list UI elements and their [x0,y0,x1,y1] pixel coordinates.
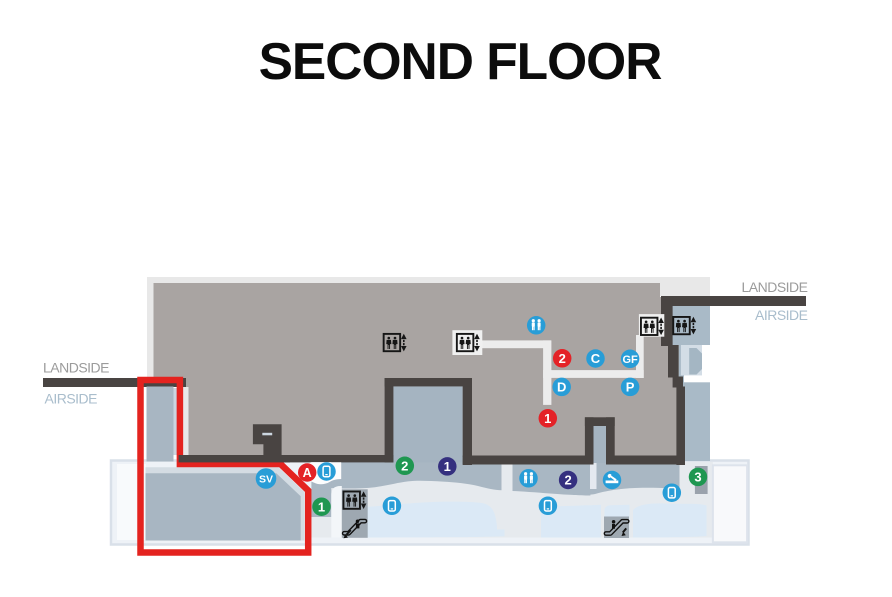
svg-text:P: P [626,380,635,395]
svg-text:LANDSIDE: LANDSIDE [43,360,109,376]
svg-text:AIRSIDE: AIRSIDE [755,307,808,323]
svg-text:D: D [557,380,566,395]
svg-text:2: 2 [559,351,566,366]
svg-text:1: 1 [444,459,451,474]
svg-text:AIRSIDE: AIRSIDE [44,391,97,407]
svg-text:2: 2 [401,459,408,474]
svg-text:C: C [591,351,601,366]
svg-text:1: 1 [544,411,551,426]
svg-text:1: 1 [318,499,325,514]
svg-text:SECOND FLOOR: SECOND FLOOR [259,32,663,90]
svg-text:LANDSIDE: LANDSIDE [741,279,807,295]
svg-text:GF: GF [622,354,638,366]
svg-text:SV: SV [259,473,273,485]
svg-text:3: 3 [694,470,701,485]
svg-text:2: 2 [564,473,571,488]
svg-text:A: A [303,466,312,480]
